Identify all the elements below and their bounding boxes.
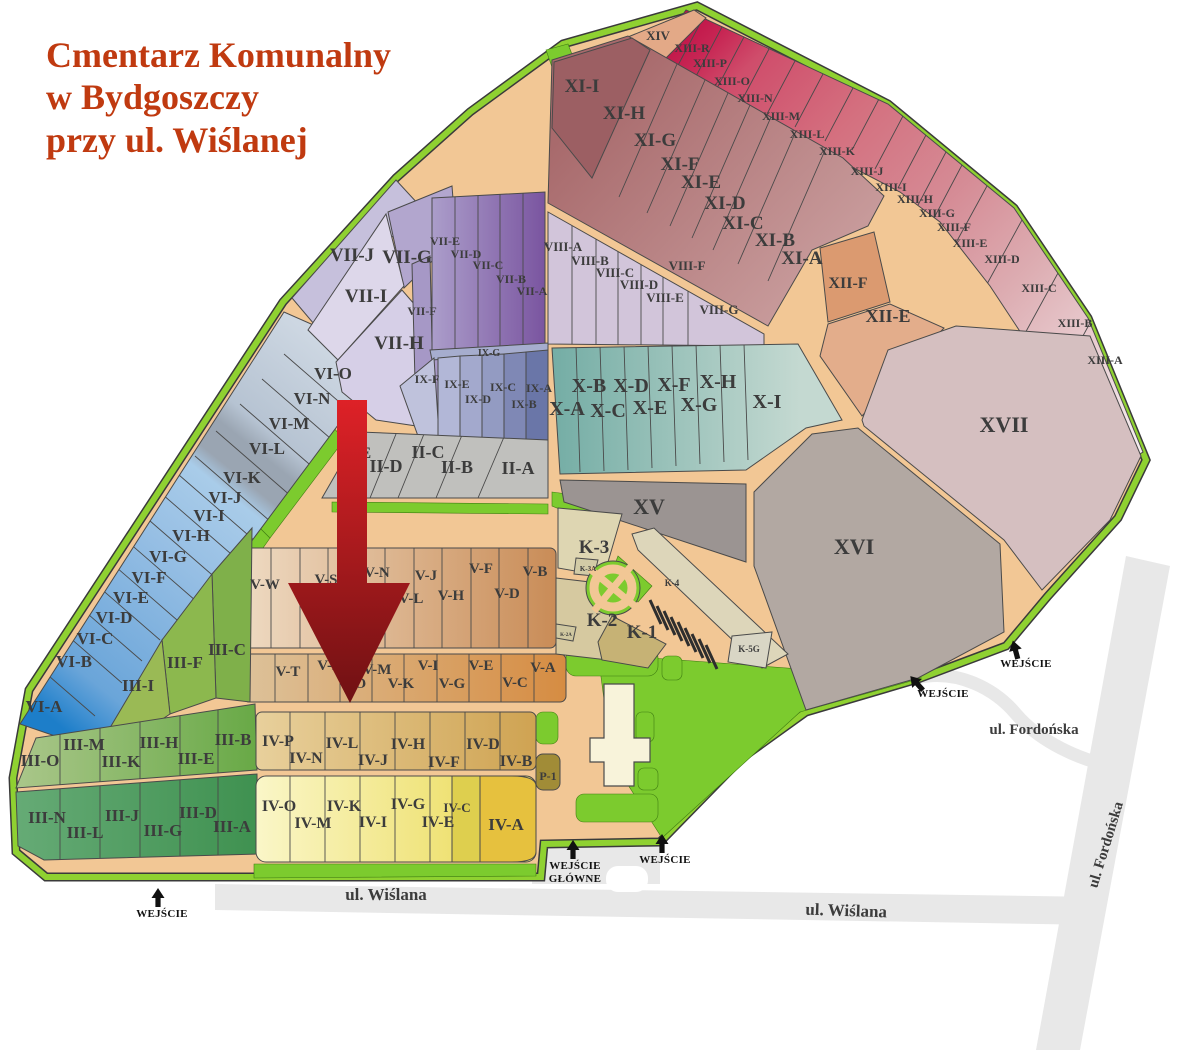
- label-VI-A: VI-A: [26, 697, 64, 716]
- label-IX-A: IX-A: [526, 381, 552, 395]
- label-IV-O: IV-O: [262, 798, 296, 815]
- entrance-arrow-icon: [152, 888, 165, 907]
- label-VI-M: VI-M: [269, 414, 310, 433]
- label-VI-N: VI-N: [294, 389, 332, 408]
- label-V-K: V-K: [388, 676, 415, 692]
- label-K-5G: K-5G: [738, 644, 760, 654]
- label-III-K: III-K: [102, 752, 142, 771]
- label-VI-O: VI-O: [314, 364, 352, 383]
- label-VIII-G: VIII-G: [699, 302, 738, 317]
- label-IV-B: IV-B: [500, 753, 533, 770]
- label-XIII-O: XIII-O: [714, 74, 750, 88]
- label-X-B: X-B: [572, 375, 606, 397]
- label-III-C: III-C: [208, 640, 246, 659]
- label-WEJŚCIE: WEJŚCIE: [917, 688, 969, 700]
- label-IX-C: IX-C: [490, 380, 516, 394]
- label-IX-B: IX-B: [511, 397, 536, 411]
- label-VI-C: VI-C: [77, 629, 114, 648]
- label-V-I: V-I: [418, 658, 439, 674]
- label-WEJŚCIE: WEJŚCIE: [549, 860, 601, 872]
- label-XII-E: XII-E: [865, 306, 910, 326]
- label-III-F: III-F: [167, 653, 203, 672]
- label-X-I: X-I: [753, 391, 782, 413]
- label-VIII-F: VIII-F: [669, 258, 706, 273]
- label-VI-K: VI-K: [223, 468, 262, 487]
- label-VI-F: VI-F: [132, 568, 167, 587]
- label-IX-D: IX-D: [465, 392, 491, 406]
- label-III-N: III-N: [28, 808, 67, 827]
- label-IX-E: IX-E: [444, 377, 469, 391]
- label-XIII-E: XIII-E: [953, 236, 988, 250]
- section-iv-c-parcel: [452, 776, 480, 862]
- label-XIII-K: XIII-K: [819, 144, 856, 158]
- label-V-T: V-T: [276, 664, 301, 680]
- label-V-J: V-J: [415, 568, 438, 584]
- label-VI-E: VI-E: [113, 588, 149, 607]
- label-IX-F: IX-F: [415, 372, 440, 386]
- label-II-C: II-C: [411, 442, 444, 462]
- label-III-J: III-J: [105, 806, 140, 825]
- label-IV-E: IV-E: [422, 814, 455, 831]
- label-VI-I: VI-I: [193, 506, 225, 525]
- label-GŁÓWNE: GŁÓWNE: [549, 873, 602, 885]
- label-IV-C: IV-C: [443, 800, 470, 815]
- label-XIII-C: XIII-C: [1021, 281, 1056, 295]
- label-II-D: II-D: [369, 456, 402, 476]
- cemetery-map-canvas: XIVXIII-RXIII-PXIII-OXIII-NXIII-MXIII-LX…: [0, 0, 1202, 1050]
- label-X-F: X-F: [657, 374, 690, 396]
- label-II-A: II-A: [501, 458, 534, 478]
- label-K-1: K-1: [627, 622, 658, 643]
- label-X-C: X-C: [590, 400, 626, 422]
- label-XI-I: XI-I: [565, 76, 600, 97]
- label-VII-A: VII-A: [517, 284, 548, 298]
- label-V-B: V-B: [523, 564, 548, 580]
- label-VI-J: VI-J: [208, 488, 242, 507]
- label-IV-D: IV-D: [466, 736, 499, 753]
- section-group-iv: [256, 712, 536, 862]
- label-IV-H: IV-H: [391, 736, 426, 753]
- label-XIII-G: XIII-G: [919, 206, 955, 220]
- map-title-line2: w Bydgoszczy: [46, 76, 391, 118]
- label-IV-I: IV-I: [359, 814, 387, 831]
- label-III-G: III-G: [144, 821, 183, 840]
- label-XIII-P: XIII-P: [693, 56, 727, 70]
- map-title-line3: przy ul. Wiślanej: [46, 119, 391, 161]
- label-XIII-J: XIII-J: [851, 164, 884, 178]
- label-X-D: X-D: [613, 375, 649, 397]
- label-K-3A: K-3A: [580, 565, 596, 573]
- label-VII-E: VII-E: [430, 234, 460, 248]
- label-XI-D: XI-D: [704, 193, 745, 214]
- label-XI-G: XI-G: [634, 130, 676, 151]
- label-III-M: III-M: [63, 735, 105, 754]
- label-XVI: XVI: [834, 534, 874, 559]
- label-VII-G: VII-G: [382, 247, 432, 268]
- label-XIII-N: XIII-N: [737, 91, 773, 105]
- label-ul. Fordońska: ul. Fordońska: [989, 722, 1079, 738]
- label-VII-H: VII-H: [374, 333, 424, 354]
- label-V-H: V-H: [438, 588, 465, 604]
- label-III-B: III-B: [215, 730, 252, 749]
- label-IX-G: IX-G: [478, 348, 500, 359]
- label-VII-J: VII-J: [330, 245, 374, 266]
- label-III-D: III-D: [179, 803, 217, 822]
- label-III-I: III-I: [122, 676, 155, 695]
- label-XIII-A: XIII-A: [1087, 353, 1123, 367]
- label-III-L: III-L: [67, 823, 104, 842]
- label-VII-F: VII-F: [407, 304, 436, 318]
- label-V-F: V-F: [469, 561, 493, 577]
- label-V-W: V-W: [250, 577, 280, 593]
- label-XII-F: XII-F: [828, 275, 867, 292]
- label-V-E: V-E: [469, 658, 494, 674]
- label-K-2A: K-2A: [560, 633, 572, 638]
- label-VI-B: VI-B: [56, 652, 92, 671]
- label-VI-L: VI-L: [249, 439, 285, 458]
- label-XI-E: XI-E: [681, 172, 721, 193]
- label-XIV: XIV: [646, 28, 670, 43]
- label-III-E: III-E: [178, 749, 215, 768]
- label-IV-P: IV-P: [262, 733, 294, 750]
- label-WEJŚCIE: WEJŚCIE: [639, 854, 691, 866]
- label-III-H: III-H: [140, 733, 179, 752]
- label-VII-I: VII-I: [345, 286, 387, 307]
- label-IV-F: IV-F: [428, 754, 460, 771]
- label-ul. Wiślana: ul. Wiślana: [805, 900, 888, 922]
- label-VI-D: VI-D: [96, 608, 133, 627]
- label-V-G: V-G: [439, 676, 466, 692]
- label-IV-J: IV-J: [358, 752, 388, 769]
- label-X-G: X-G: [681, 394, 718, 416]
- label-XIII-M: XIII-M: [762, 109, 800, 123]
- map-title-line1: Cmentarz Komunalny: [46, 34, 391, 76]
- label-K-3: K-3: [579, 537, 610, 558]
- label-IV-K: IV-K: [327, 798, 362, 815]
- label-IV-G: IV-G: [391, 796, 426, 813]
- label-VIII-A: VIII-A: [544, 239, 583, 254]
- label-VIII-E: VIII-E: [646, 290, 684, 305]
- label-IV-N: IV-N: [289, 750, 323, 767]
- label-XIII-B: XIII-B: [1058, 316, 1093, 330]
- label-VI-H: VI-H: [172, 526, 210, 545]
- label-V-D: V-D: [494, 586, 520, 602]
- label-IV-M: IV-M: [294, 815, 331, 832]
- label-XIII-F: XIII-F: [937, 220, 971, 234]
- label-III-A: III-A: [213, 817, 252, 836]
- label-IV-L: IV-L: [326, 735, 359, 752]
- label-V-N: V-N: [364, 565, 390, 581]
- label-III-O: III-O: [21, 751, 60, 770]
- map-title: Cmentarz Komunalny w Bydgoszczy przy ul.…: [46, 34, 391, 161]
- label-K-2: K-2: [587, 610, 618, 631]
- label-K-4: K-4: [665, 578, 680, 588]
- label-XI-H: XI-H: [603, 103, 645, 124]
- label-ul. Wiślana: ul. Wiślana: [345, 885, 427, 904]
- label-IV-A: IV-A: [488, 815, 524, 834]
- label-P-1: P-1: [539, 769, 556, 783]
- label-V-C: V-C: [502, 675, 528, 691]
- label-X-A: X-A: [549, 398, 585, 420]
- gate-island: [606, 866, 648, 892]
- label-X-E: X-E: [633, 397, 667, 419]
- label-XIII-H: XIII-H: [897, 192, 934, 206]
- label-WEJŚCIE: WEJŚCIE: [1000, 658, 1052, 670]
- label-XI-A: XI-A: [781, 248, 822, 269]
- label-XVII: XVII: [980, 412, 1029, 437]
- label-XIII-L: XIII-L: [790, 127, 825, 141]
- label-WEJŚCIE: WEJŚCIE: [136, 908, 188, 920]
- label-XIII-D: XIII-D: [984, 252, 1020, 266]
- label-VI-G: VI-G: [149, 547, 187, 566]
- label-XIII-R: XIII-R: [674, 41, 710, 55]
- fordonska-road: [1036, 556, 1170, 1050]
- label-X-H: X-H: [700, 371, 737, 393]
- label-II-B: II-B: [441, 457, 473, 477]
- label-V-A: V-A: [530, 660, 556, 676]
- label-VII-C: VII-C: [473, 258, 504, 272]
- label-XV: XV: [633, 494, 665, 519]
